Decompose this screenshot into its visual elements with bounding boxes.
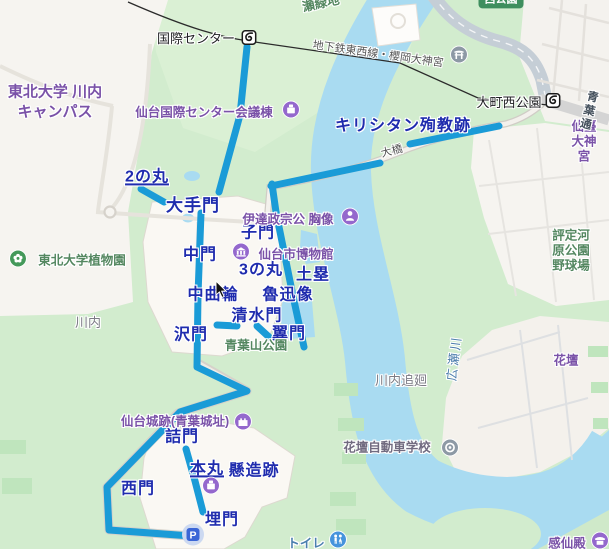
map-canvas[interactable]: 2の丸大手門子門中門3の丸土塁中曲輪魯迅像清水門沢門翼門詰門本丸懸造跡西門埋門キ… — [0, 0, 609, 549]
map-base — [0, 0, 609, 549]
land-layer — [0, 0, 609, 549]
route-segment-6 — [217, 325, 237, 326]
